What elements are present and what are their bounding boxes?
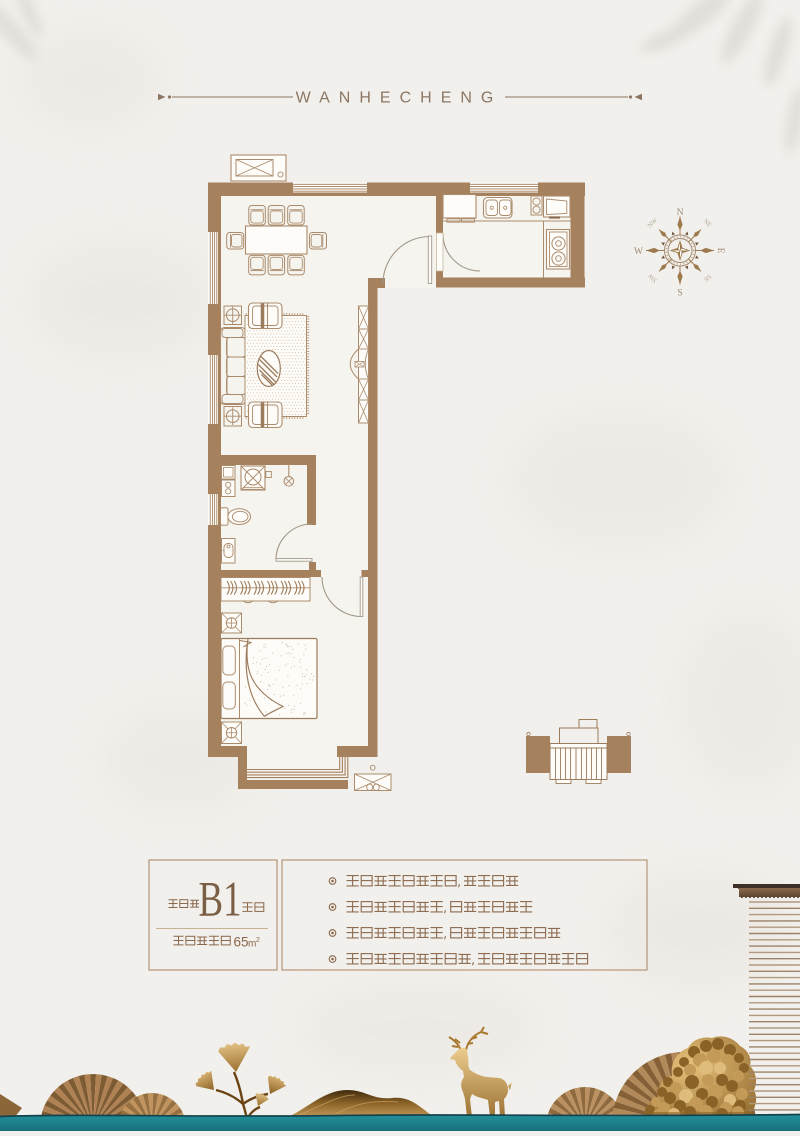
svg-text:W: W <box>634 247 643 257</box>
svg-text:2: 2 <box>256 937 260 944</box>
svg-text:E: E <box>715 248 725 254</box>
svg-text:N: N <box>677 208 684 218</box>
svg-text:S: S <box>677 289 682 299</box>
svg-text:B1: B1 <box>199 871 242 927</box>
svg-text:65: 65 <box>234 935 249 950</box>
svg-text:WANHECHENG: WANHECHENG <box>296 90 503 107</box>
